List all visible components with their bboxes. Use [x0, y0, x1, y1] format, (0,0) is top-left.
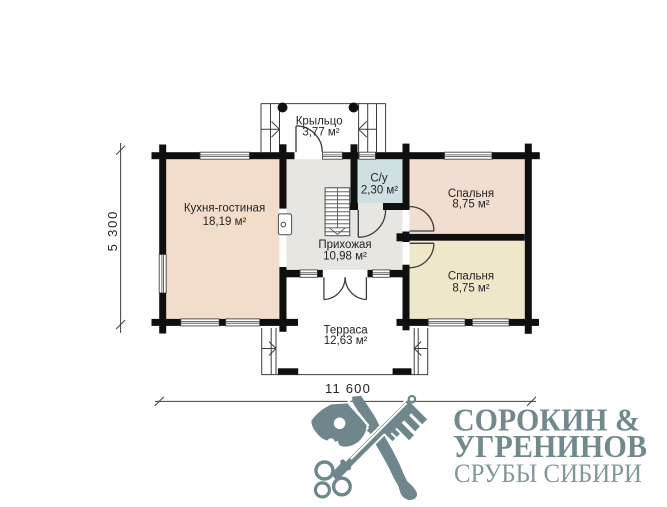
- svg-text:12,63 м²: 12,63 м²: [324, 335, 368, 347]
- svg-text:3,77 м²: 3,77 м²: [302, 127, 339, 139]
- svg-text:Спальня: Спальня: [448, 271, 494, 283]
- svg-text:11 600: 11 600: [325, 381, 371, 396]
- svg-text:18,19 м²: 18,19 м²: [203, 216, 247, 228]
- svg-text:СРУБЫ СИБИРИ: СРУБЫ СИБИРИ: [454, 458, 642, 488]
- svg-text:8,75 м²: 8,75 м²: [452, 282, 489, 294]
- svg-text:Кухня-гостиная: Кухня-гостиная: [184, 203, 265, 215]
- svg-text:2,30 м²: 2,30 м²: [361, 185, 398, 197]
- svg-text:Крыльцо: Крыльцо: [296, 115, 343, 127]
- svg-text:С/у: С/у: [370, 173, 388, 185]
- svg-text:5 300: 5 300: [105, 210, 120, 252]
- svg-text:Прихожая: Прихожая: [318, 239, 371, 251]
- svg-text:8,75 м²: 8,75 м²: [452, 198, 489, 210]
- svg-text:10,98 м²: 10,98 м²: [323, 250, 367, 262]
